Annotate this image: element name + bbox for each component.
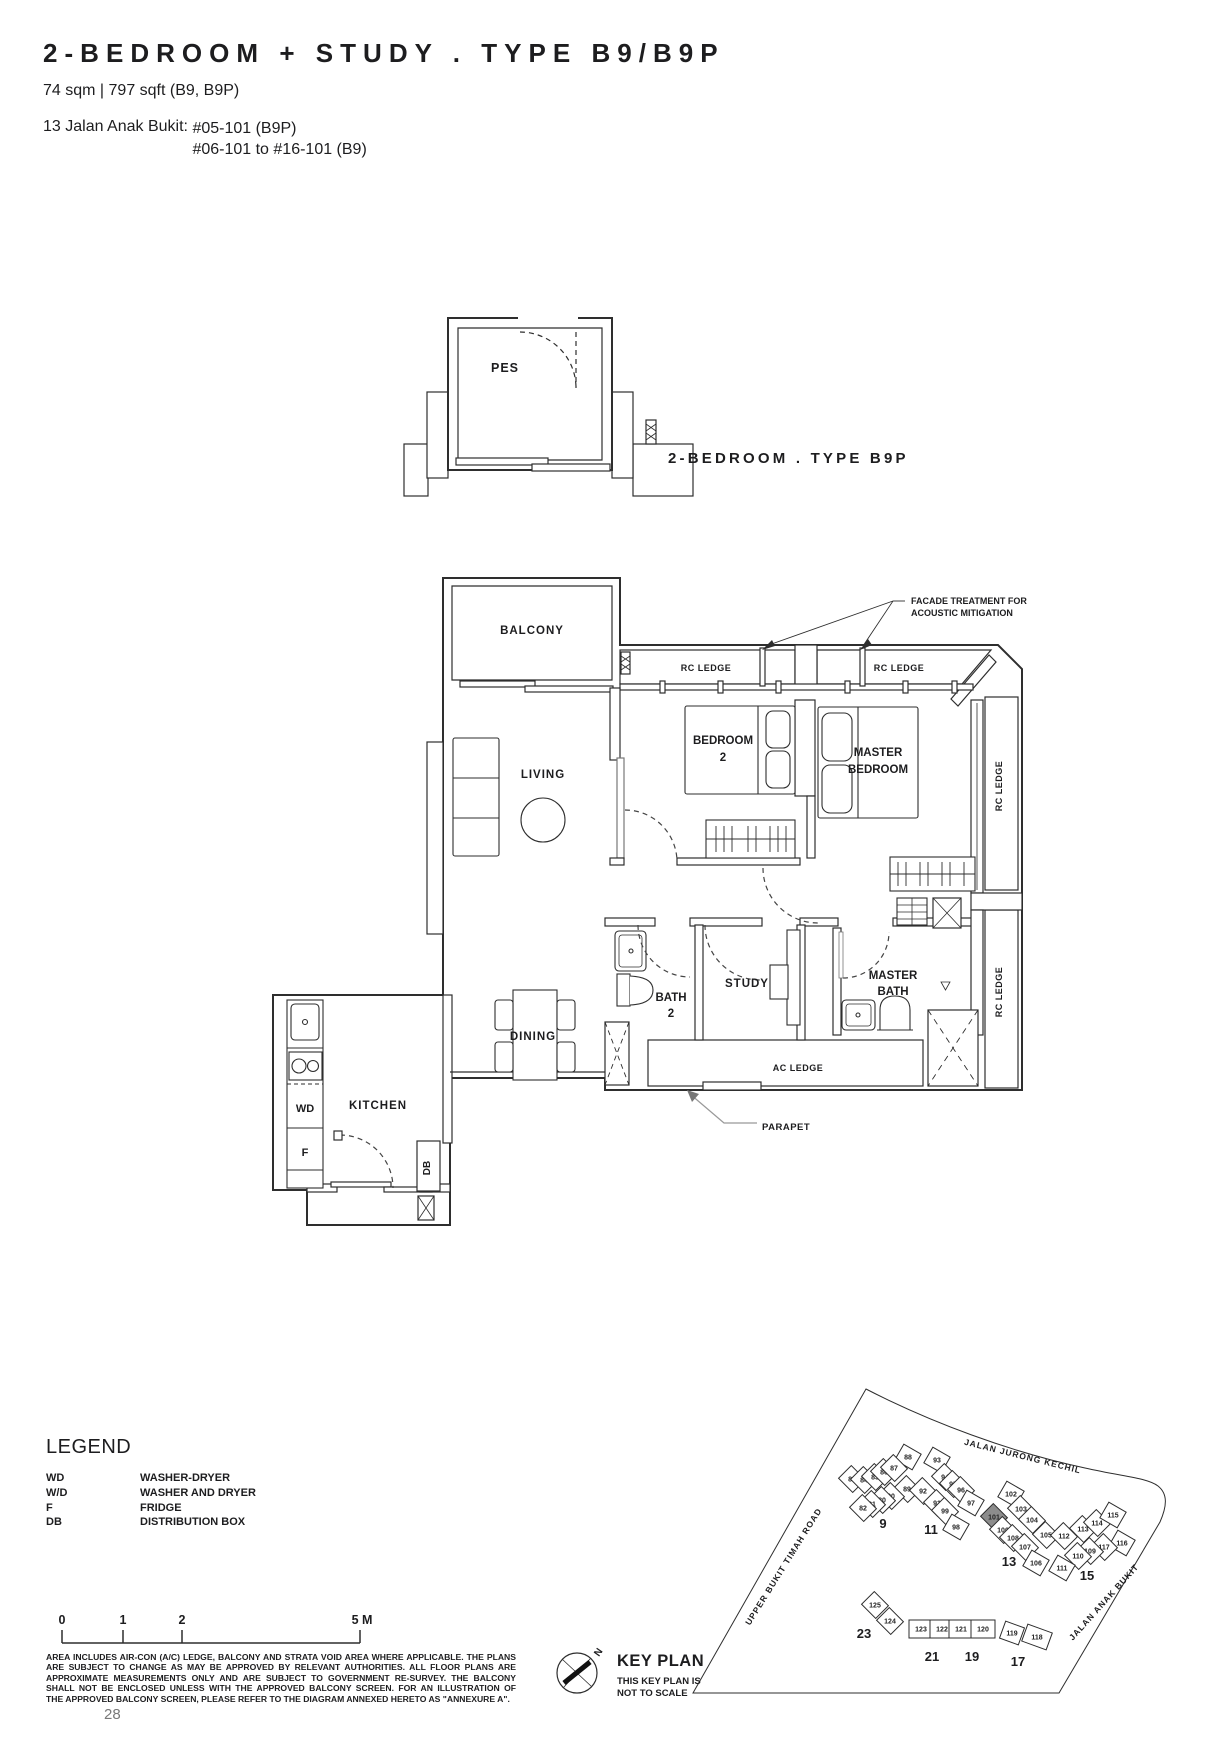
rc-ledge-label-1: RC LEDGE: [681, 663, 732, 673]
keyplan-unit-number: 118: [1031, 1635, 1042, 1642]
shaft-icon: [418, 1196, 434, 1220]
sink-icon: [615, 931, 646, 971]
toilet-icon: [877, 996, 913, 1030]
facade-treatment-bar: [860, 648, 865, 686]
keyplan-unit-number: 115: [1107, 1513, 1118, 1520]
parapet-label: PARAPET: [762, 1122, 810, 1133]
road-jalan-anak-bukit: JALAN ANAK BUKIT: [1067, 1562, 1141, 1642]
keyplan-unit-number: 124: [884, 1619, 896, 1626]
disclaimer-line: ARE SUBJECT TO CHANGE AS MAY BE APPROVED…: [46, 1662, 516, 1672]
keyplan-block-11: 11: [924, 1522, 938, 1537]
legend-row: FFRIDGE: [46, 1501, 256, 1516]
keyplan-unit-number: 99: [941, 1509, 949, 1516]
keyplan-unit-number: 82: [859, 1506, 867, 1513]
legend-abbr: WD: [46, 1471, 140, 1486]
legend-row: WDWASHER-DRYER: [46, 1471, 256, 1486]
window-marker-icon: [621, 652, 630, 674]
bed-icon: [685, 706, 795, 794]
keyplan-unit-number: 119: [1006, 1631, 1017, 1638]
keyplan-unit-number: 105: [1040, 1533, 1052, 1540]
scale-tick-label: 5 M: [352, 1613, 373, 1627]
window-marker-icon: [646, 420, 656, 444]
keyplan-unit-number: 92: [919, 1489, 927, 1496]
balcony-label: BALCONY: [500, 625, 564, 637]
keyplan-block-19: 19: [965, 1649, 979, 1664]
key-plan-note-2: NOT TO SCALE: [617, 1688, 688, 1699]
shaft-icon: [928, 1010, 978, 1086]
key-plan-boundary: [693, 1389, 1165, 1693]
legend-abbr: F: [46, 1501, 140, 1516]
keyplan-unit-number: 87: [890, 1466, 898, 1473]
coffee-table-icon: [521, 798, 565, 842]
north-label: N: [592, 1646, 605, 1658]
road-upper-bukit-timah: UPPER BUKIT TIMAH ROAD: [743, 1506, 824, 1627]
keyplan-block-21: 21: [925, 1649, 939, 1664]
keyplan-unit-number: 125: [869, 1603, 881, 1610]
kitchen-label: KITCHEN: [349, 1100, 407, 1112]
parapet-wall: [703, 1082, 761, 1090]
north-compass-icon: [557, 1653, 597, 1693]
keyplan-unit-121: 121: [949, 1620, 973, 1638]
scale-labels: 0125 M: [59, 1613, 373, 1627]
dining-label: DINING: [510, 1031, 556, 1043]
legend-desc: DISTRIBUTION BOX: [140, 1515, 245, 1530]
parapet-leader: [687, 1090, 757, 1123]
living-label: LIVING: [521, 769, 565, 781]
ac-ledge-label: AC LEDGE: [773, 1063, 824, 1073]
sofa-icon: [453, 738, 499, 856]
floorplan-page: 2-BEDROOM + STUDY . TYPE B9/B9P 74 sqm |…: [0, 0, 1218, 1762]
legend-abbr: W/D: [46, 1486, 140, 1501]
shaft-icon: [605, 1022, 629, 1085]
rc-ledge-label-right-bottom: RC LEDGE: [994, 967, 1004, 1018]
keyplan-unit-number: 112: [1058, 1534, 1069, 1541]
balcony-sliding-door: [460, 681, 535, 687]
master-bath-door-panel: [839, 932, 843, 978]
legend-desc: WASHER AND DRYER: [140, 1486, 256, 1501]
keyplan-unit-number: 111: [1057, 1566, 1068, 1573]
entry-sliding-panel: [331, 1182, 391, 1187]
bedroom2-door-panel: [617, 758, 624, 858]
legend-desc: WASHER-DRYER: [140, 1471, 230, 1486]
kitchen-counter: [287, 1000, 323, 1188]
rc-ledge-label-2: RC LEDGE: [874, 663, 925, 673]
hob-icon: [289, 1052, 322, 1080]
keyplan-block-13: 13: [1002, 1554, 1016, 1569]
washer-dryer-label: WD: [296, 1103, 314, 1115]
keyplan-unit-number: 107: [1019, 1545, 1031, 1552]
facade-leader: [762, 601, 905, 650]
keyplan-unit-number: 106: [1030, 1561, 1042, 1568]
rc-ledge-label-right-top: RC LEDGE: [994, 761, 1004, 812]
fridge-label: F: [302, 1147, 309, 1159]
page-number: 28: [104, 1706, 121, 1723]
keyplan-unit-number: 113: [1077, 1527, 1088, 1534]
distribution-box-label: DB: [422, 1161, 433, 1175]
pes-label: PES: [491, 361, 519, 375]
shaft-icon: [933, 898, 961, 928]
road-jalan-jurong-kechil: JALAN JURONG KECHIL: [963, 1437, 1082, 1476]
keyplan-unit-number: 120: [977, 1627, 989, 1634]
dresser-icon: [897, 898, 927, 925]
keyplan-unit-number: 123: [915, 1627, 927, 1634]
key-plan-note-1: THIS KEY PLAN IS: [617, 1676, 701, 1687]
keyplan-block-23: 23: [857, 1626, 871, 1641]
disclaimer-line: AREA INCLUDES AIR-CON (A/C) LEDGE, BALCO…: [46, 1652, 516, 1662]
legend-row: DBDISTRIBUTION BOX: [46, 1515, 256, 1530]
pes-fragment: [404, 314, 693, 496]
scale-tick-label: 2: [179, 1613, 186, 1627]
sink-icon: [291, 1004, 319, 1040]
wardrobe-icon: [706, 820, 795, 858]
scale-bar: [62, 1630, 360, 1643]
legend-title: LEGEND: [46, 1436, 256, 1459]
bedroom-window-band: [620, 684, 973, 690]
legend-desc: FRIDGE: [140, 1501, 182, 1516]
keyplan-unit-123: 123: [909, 1620, 933, 1638]
disclaimer-line: APPROXIMATE MEASUREMENTS ONLY AND ARE SU…: [46, 1673, 516, 1683]
keyplan-unit-number: 114: [1091, 1521, 1102, 1528]
key-plan-title: KEY PLAN: [617, 1652, 704, 1670]
keyplan-block-15: 15: [1080, 1568, 1094, 1583]
keyplan-unit-number: 104: [1026, 1518, 1038, 1525]
key-plan: 8883848586878990808182939495969291999798…: [557, 1389, 1165, 1699]
disclaimer-text: AREA INCLUDES AIR-CON (A/C) LEDGE, BALCO…: [46, 1652, 516, 1704]
keyplan-unit-119: 119: [1000, 1621, 1025, 1645]
legend-rows: WDWASHER-DRYERW/DWASHER AND DRYERFFRIDGE…: [46, 1471, 256, 1530]
keyplan-unit-number: 122: [936, 1627, 948, 1634]
keyplan-block-9: 9: [879, 1516, 886, 1531]
legend-abbr: DB: [46, 1515, 140, 1530]
keyplan-unit-number: 93: [933, 1458, 941, 1465]
keyplan-unit-number: 97: [967, 1501, 975, 1508]
keyplan-unit-number: 88: [904, 1455, 912, 1462]
keyplan-unit-120: 120: [971, 1620, 995, 1638]
keyplan-unit-number: 102: [1005, 1492, 1017, 1499]
keyplan-block-17: 17: [1011, 1654, 1025, 1669]
variant-type-label: 2-BEDROOM . TYPE B9P: [668, 450, 909, 467]
keyplan-unit-number: 98: [952, 1525, 960, 1532]
ledge-divider-wall: [795, 645, 817, 686]
legend: LEGEND WDWASHER-DRYERW/DWASHER AND DRYER…: [46, 1436, 256, 1530]
entry-door-leaf: [334, 1131, 342, 1140]
facade-treatment-note: FACADE TREATMENT FORACOUSTIC MITIGATION: [911, 596, 1027, 618]
keyplan-unit-number: 116: [1116, 1541, 1127, 1548]
sink-icon: [842, 1000, 875, 1030]
scale-tick-label: 1: [120, 1613, 127, 1627]
scale-tick-label: 0: [59, 1613, 66, 1627]
keyplan-unit-118: 118: [1022, 1624, 1053, 1650]
keyplan-unit-number: 110: [1072, 1554, 1083, 1561]
disclaimer-line: SHALL NOT BE ENCLOSED UNLESS WITH THE AP…: [46, 1683, 516, 1693]
disclaimer-line: THE APPROVED BALCONY SCREEN, PLEASE REFE…: [46, 1694, 516, 1704]
keyplan-unit-number: 96: [957, 1488, 965, 1495]
study-label: STUDY: [725, 978, 769, 990]
keyplan-unit-number: 121: [955, 1627, 967, 1634]
legend-row: W/DWASHER AND DRYER: [46, 1486, 256, 1501]
wardrobe-icon: [890, 857, 975, 891]
bed-icon: [818, 707, 918, 818]
facade-treatment-bar: [760, 648, 765, 686]
